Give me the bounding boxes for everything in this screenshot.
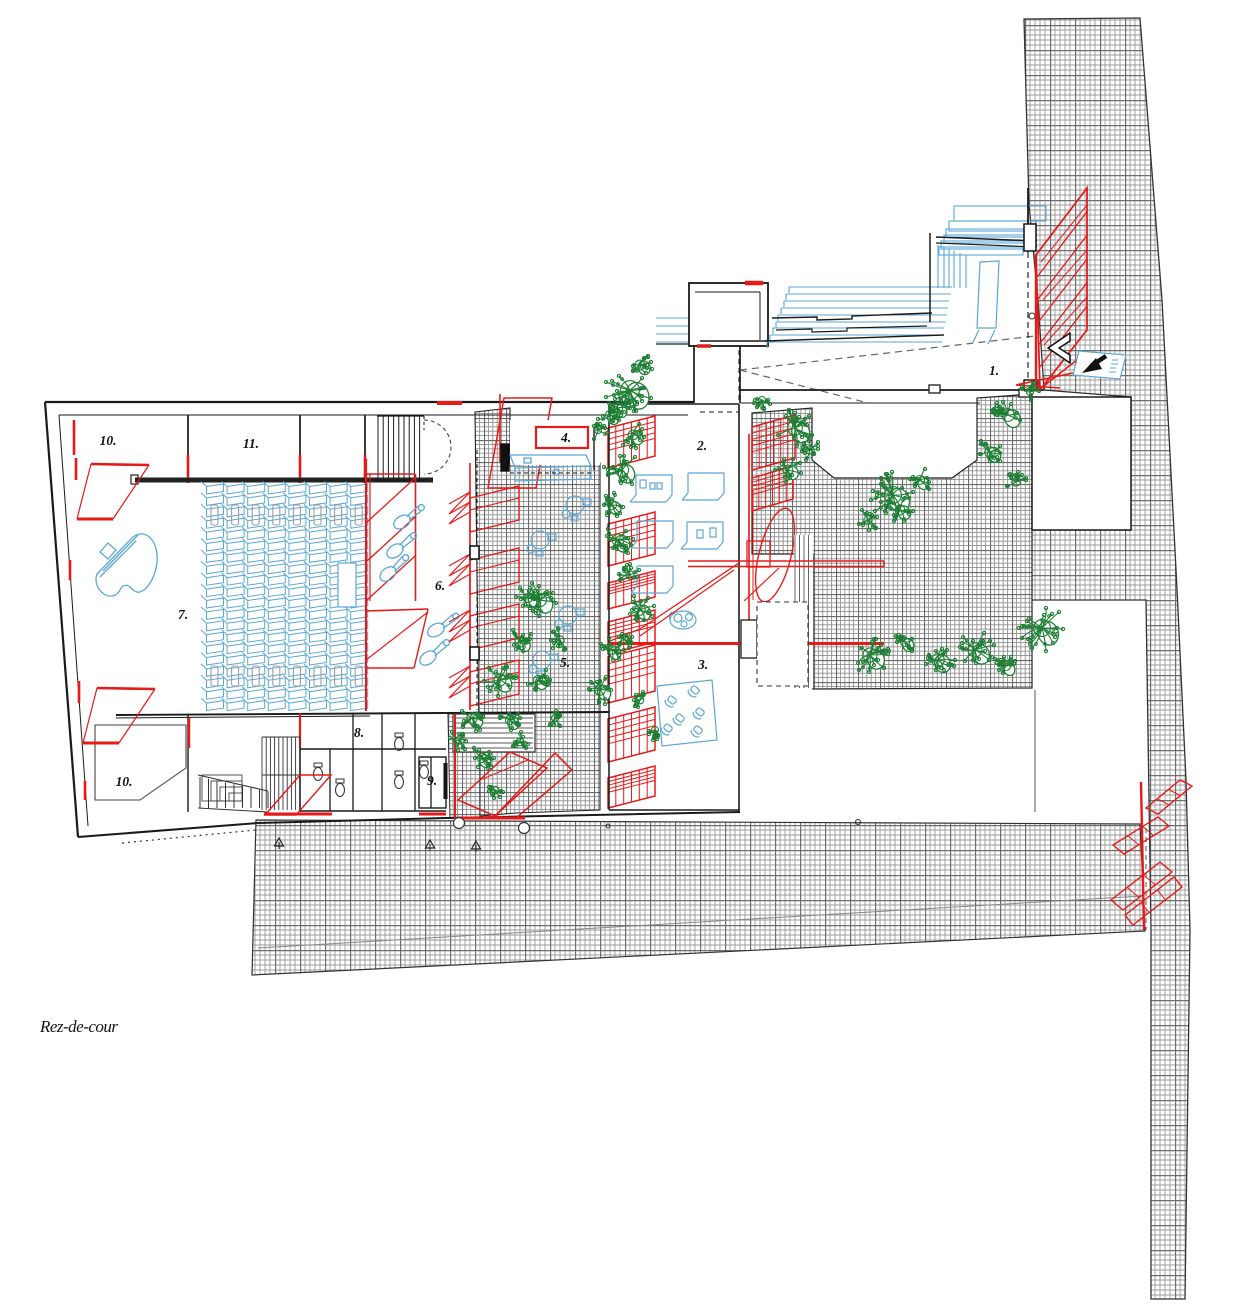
svg-text:4.: 4. <box>560 430 571 445</box>
svg-text:9.: 9. <box>427 773 437 788</box>
svg-text:5.: 5. <box>560 655 570 670</box>
svg-text:8.: 8. <box>354 725 364 740</box>
svg-text:Rez-de-cour: Rez-de-cour <box>39 1017 118 1036</box>
svg-text:1.: 1. <box>989 363 999 378</box>
svg-text:3.: 3. <box>697 657 708 672</box>
svg-text:7.: 7. <box>178 607 188 622</box>
svg-text:2.: 2. <box>696 438 707 453</box>
svg-text:6.: 6. <box>435 578 445 593</box>
svg-text:11.: 11. <box>243 436 259 451</box>
svg-text:10.: 10. <box>116 774 133 789</box>
svg-text:10.: 10. <box>100 433 117 448</box>
